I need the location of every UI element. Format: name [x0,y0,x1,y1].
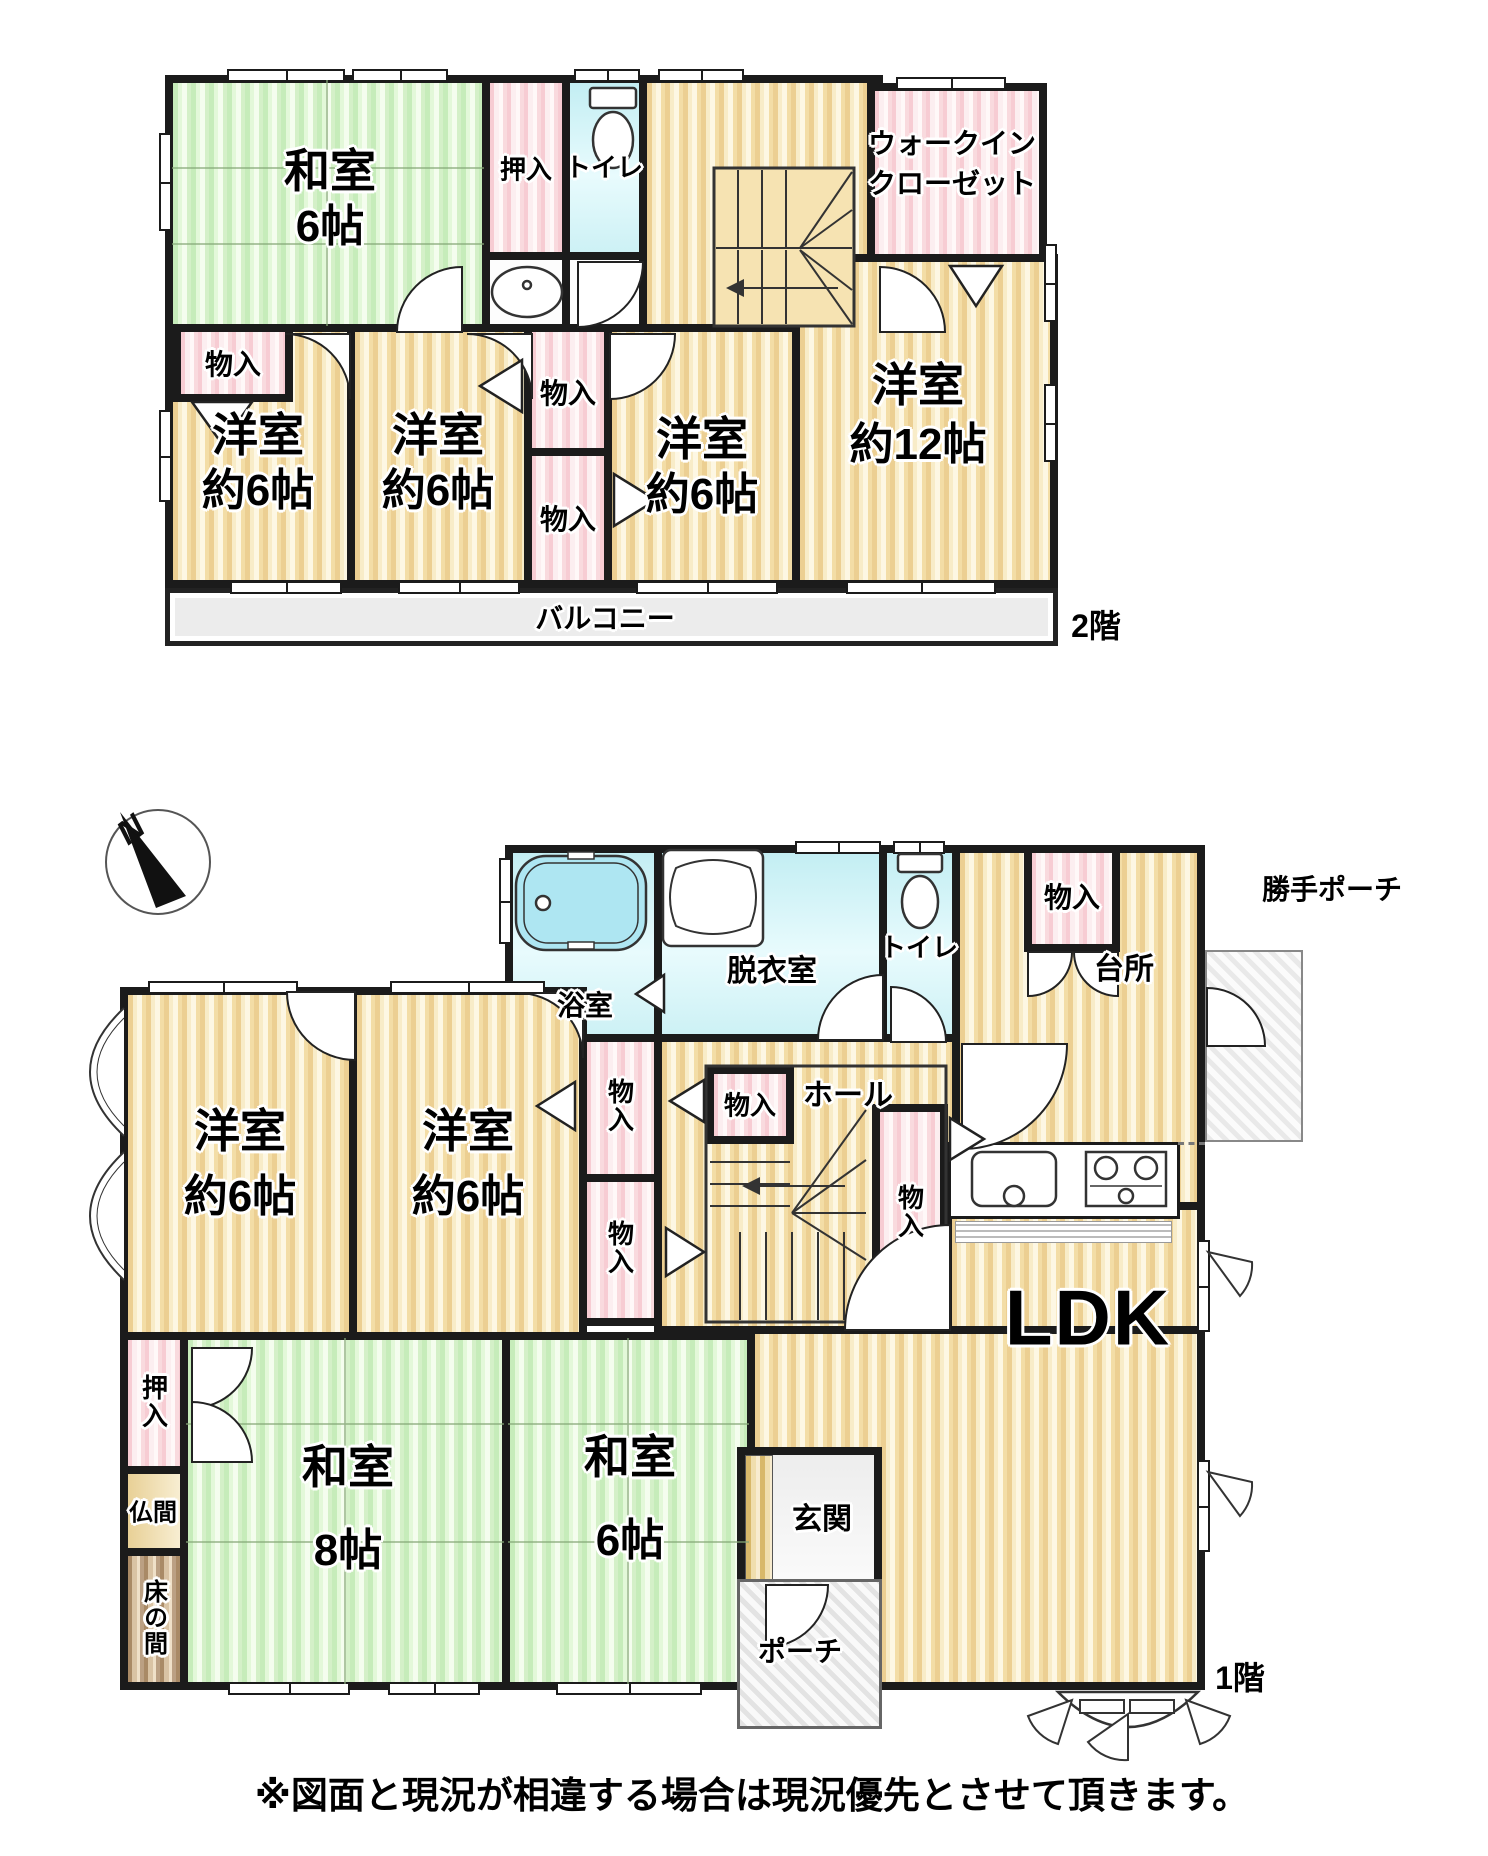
window [636,581,778,594]
window [556,1682,702,1695]
room-2f-washitsu-6 [165,75,490,332]
room-2f-yoshitsu-b [347,324,532,588]
room-1f-mono-kitchen [1024,845,1120,952]
hanging-cabinet-dash [1178,1142,1205,1145]
label-floor-2f: 2階 [1071,601,1121,647]
disclaimer-text: ※図面と現況が相違する場合は現況優先とさせて頂きます。 [255,1765,1249,1819]
room-2f-wash-corner [482,252,570,332]
window [658,69,744,82]
window [1044,384,1057,462]
floor-plan: N 和室 6帖 押入 トイレ ウォークイン クローゼット 物入 洋室 約6帖 洋… [0,0,1488,1856]
window [230,581,342,594]
window [148,981,298,994]
counter-front [955,1221,1172,1243]
room-2f-walkin-closet [867,83,1047,262]
compass: N [106,806,210,914]
window [1197,1240,1210,1332]
window [159,133,172,231]
room-1f-mono-corridor-top [579,1034,662,1182]
porch-area [737,1579,882,1729]
window [1044,244,1057,322]
bay-window-left [90,1008,124,1280]
window [1197,1460,1210,1552]
room-1f-mono-corridor-bottom [579,1174,662,1326]
window [574,69,640,82]
genkan-step [745,1455,773,1581]
room-2f-yoshitsu-12 [792,254,1058,588]
window [159,410,172,502]
room-1f-butsuma [120,1466,188,1556]
room-2f-mono-mid-bottom [524,448,612,588]
window [228,1682,350,1695]
room-2f-oshiire [482,75,570,260]
katte-porch-area [1205,950,1303,1142]
room-2f-mono-left [173,324,293,402]
room-1f-washitsu-6 [502,1332,755,1690]
room-1f-yoshitsu-a [120,987,357,1340]
room-1f-toilet [879,845,960,1042]
kitchen-counter [948,1142,1180,1219]
window [896,77,1006,90]
label-katte-porch: 勝手ポーチ [1262,868,1402,908]
room-1f-mono-stairs-left [706,1066,794,1144]
room-2f-yoshitsu-c [604,324,800,588]
window [398,581,520,594]
window [227,69,345,82]
room-1f-oshiire [120,1332,188,1474]
room-2f-toilet [562,75,647,260]
window [352,69,448,82]
room-1f-washitsu-8 [180,1332,510,1690]
room-1f-tokonoma [120,1548,188,1690]
window [390,981,545,994]
label-floor-1f: 1階 [1215,1653,1265,1699]
compass-north-label: N [110,806,154,852]
room-2f-mono-mid-top [524,324,612,456]
balcony [165,588,1058,646]
window [795,841,881,854]
window [893,841,945,854]
room-1f-yoshitsu-b [349,987,587,1340]
window [499,858,512,944]
window [388,1682,480,1695]
room-1f-datsuishitsu [654,845,887,1042]
room-1f-mono-stairs-right [872,1104,948,1326]
window [846,581,996,594]
